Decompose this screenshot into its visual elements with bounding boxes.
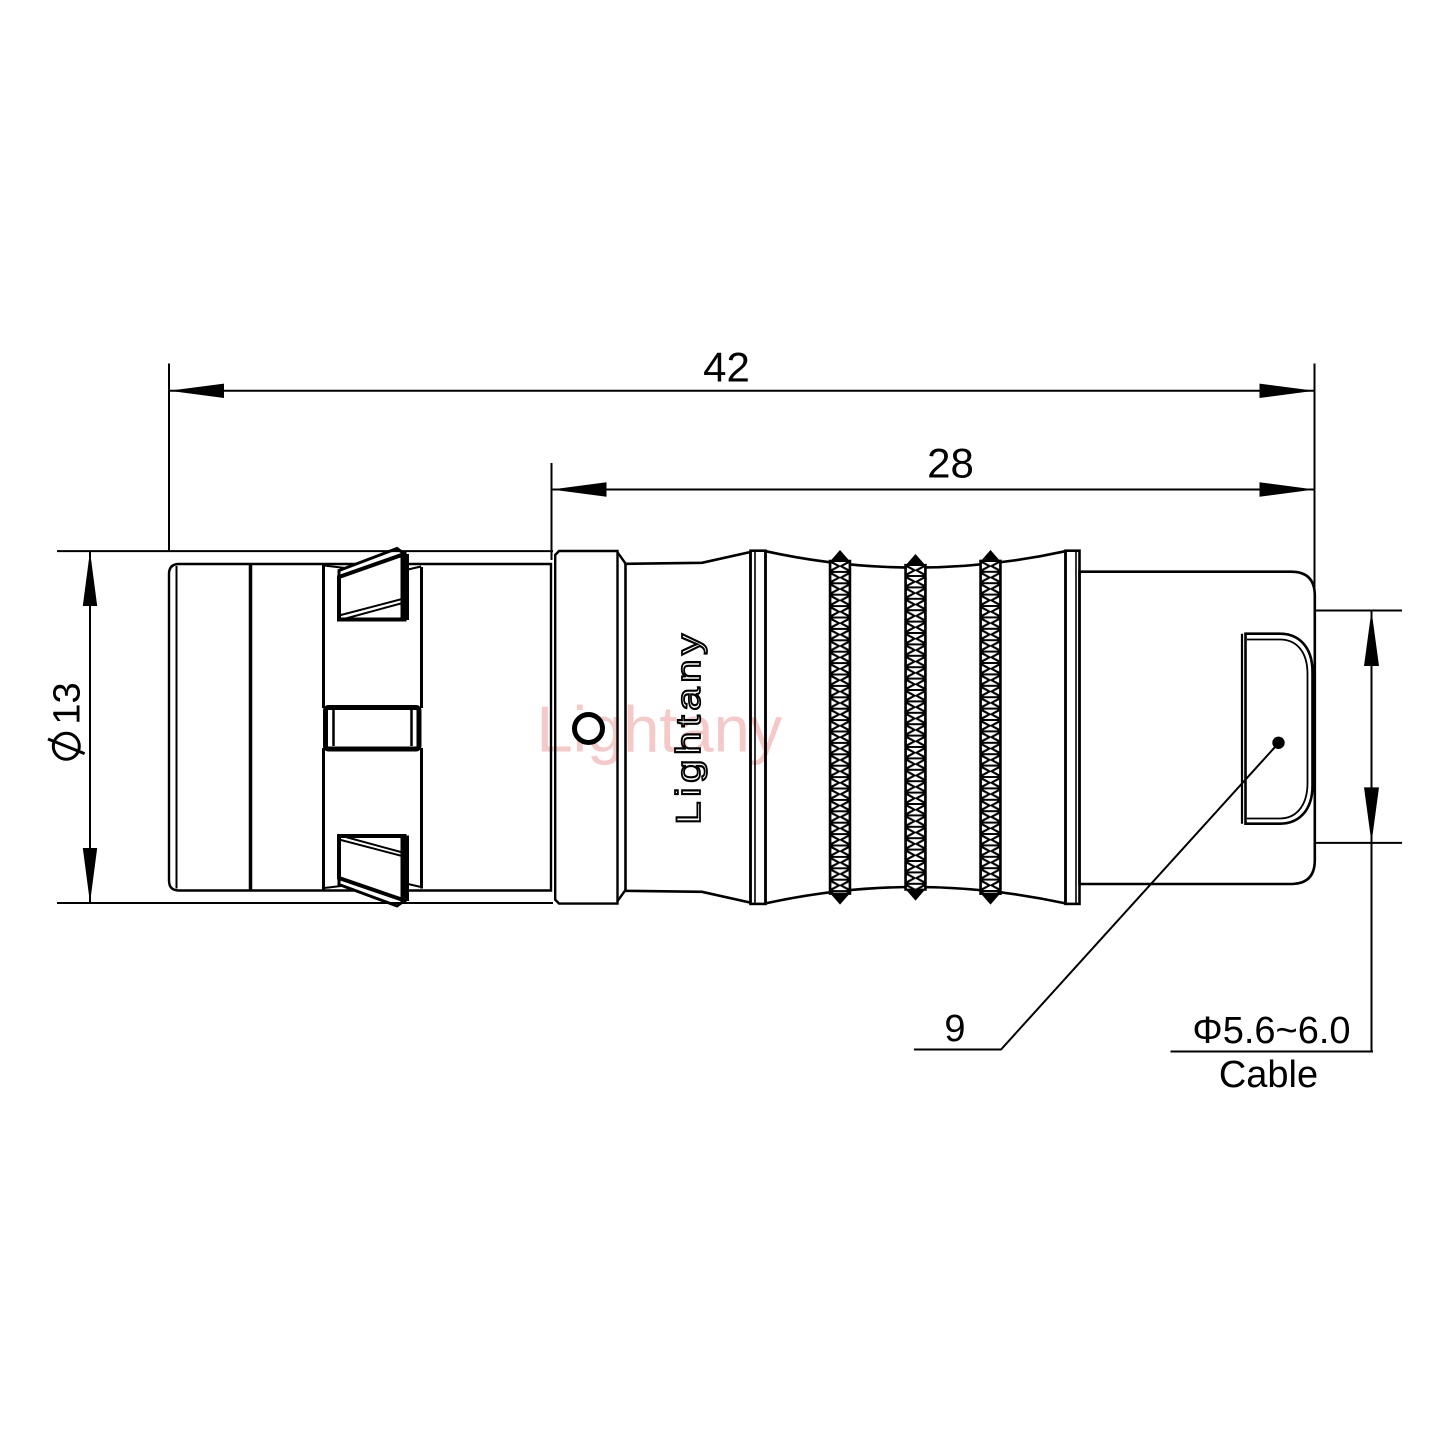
svg-text:9: 9	[944, 1008, 965, 1050]
svg-text:42: 42	[703, 344, 750, 391]
svg-text:Φ5.6~6.0: Φ5.6~6.0	[1192, 1010, 1350, 1052]
svg-text:Lightany: Lightany	[670, 629, 709, 825]
svg-text:13: 13	[47, 682, 89, 724]
svg-text:28: 28	[927, 440, 974, 487]
svg-text:Cable: Cable	[1219, 1054, 1318, 1096]
